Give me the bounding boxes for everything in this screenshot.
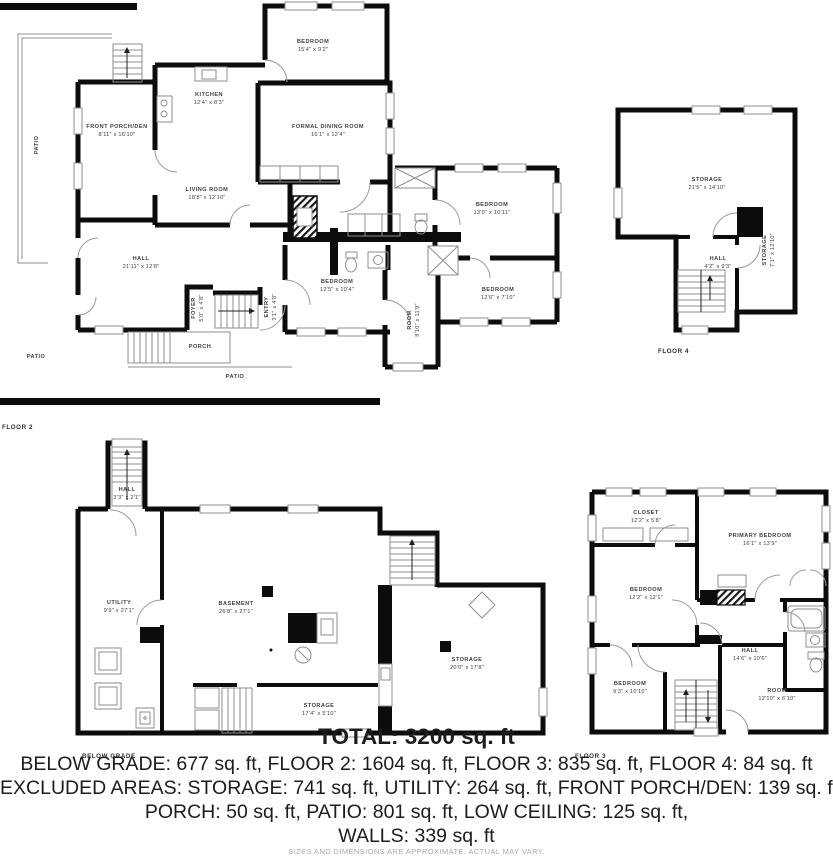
room-label-patio-left: PATIO — [33, 136, 41, 155]
room-label-porch-den: FRONT PORCH/DEN8'11" x 16'10" — [86, 123, 147, 139]
room-label-bedroom-ne: BEDROOM13'9" x 10'11" — [474, 201, 511, 217]
stairs — [675, 680, 717, 730]
room-label-storage-big: STORAGE20'0" x 17'8" — [450, 656, 484, 672]
room-label-storage-strip: STORAGE17'4" x 5'10" — [302, 702, 336, 718]
room-label-bedroom-w: BEDROOM12'2" x 12'1" — [629, 586, 663, 602]
room-label-room-se: ROOM12'10" x 6'10" — [758, 687, 795, 703]
room-label-kitchen: KITCHEN12'4" x 8'3" — [194, 91, 225, 107]
stairs — [678, 270, 725, 312]
door-arcs — [78, 60, 490, 330]
room-label-patio-bottom2: PATIO — [226, 373, 245, 381]
floor4-plan — [614, 106, 795, 334]
room-label-patio-bottom1: PATIO — [27, 353, 46, 361]
room-label-entry: ENTRY3'1" x 4'8" — [263, 293, 279, 320]
fence-wall — [0, 3, 137, 10]
furnace — [262, 586, 337, 663]
room-label-bedroom-top: BEDROOM15'4" x 9'2" — [297, 38, 329, 54]
room-label-dining: FORMAL DINING ROOM16'1" x 12'4" — [292, 123, 364, 139]
summary-line-excluded: EXCLUDED AREAS: STORAGE: 741 sq. ft, UTI… — [0, 777, 833, 799]
bathroom-fixtures — [788, 606, 825, 672]
summary-total: TOTAL: 3200 sq. ft — [0, 726, 833, 748]
stairs — [390, 536, 435, 585]
summary-line-floors: BELOW GRADE: 677 sq. ft, FLOOR 2: 1604 s… — [0, 753, 833, 775]
caption-floor4: FLOOR 4 — [658, 348, 689, 355]
chimney-hatch — [717, 590, 745, 605]
room-label-hall-f4: HALL4'2" x 9'3" — [704, 255, 731, 271]
floor2-plan — [0, 2, 561, 371]
windows — [74, 2, 561, 371]
room-label-storage-side-f4: STORAGE7'1" x 12'10" — [761, 233, 777, 267]
closet-shelves — [603, 528, 746, 587]
section-divider — [0, 398, 380, 405]
room-label-hall-f3: HALL14'6" x 10'6" — [733, 647, 767, 663]
room-label-bedroom-se: BEDROOM12'6" x 7'10" — [481, 286, 515, 302]
stairs — [113, 44, 142, 82]
room-label-closet: CLOSET12'2" x 5'8" — [631, 509, 662, 525]
room-label-utility: UTILITY9'9" x 27'1" — [104, 599, 135, 615]
room-label-foyer: FOYER5'0" x 4'8" — [190, 294, 206, 321]
kitchen-sink — [195, 67, 227, 81]
washer-dryer — [95, 648, 154, 728]
caption-floor2: FLOOR 2 — [2, 424, 33, 431]
below-grade-plan — [78, 439, 547, 737]
floor-plan-page: BEDROOM15'4" x 9'2" KITCHEN12'4" x 8'3" … — [0, 0, 833, 856]
stove — [157, 96, 172, 122]
room-label-bedroom-sw: BEDROOM9'3" x 10'10" — [613, 680, 647, 696]
room-label-hall-bg: HALL3'3" x 2'1" — [113, 486, 140, 502]
summary-line-porch-patio: PORCH: 50 sq. ft, PATIO: 801 sq. ft, LOW… — [0, 801, 833, 823]
room-label-hall-f2: HALL21'11" x 12'8" — [123, 255, 160, 271]
summary-disclaimer: SIZES AND DIMENSIONS ARE APPROXIMATE. AC… — [0, 847, 833, 856]
room-label-bedroom-center: BEDROOM12'5" x 10'4" — [320, 278, 354, 294]
diamond-post — [469, 592, 495, 618]
room-label-primary-bedroom: PRIMARY BEDROOM16'1" x 13'9" — [728, 532, 791, 548]
summary-line-walls: WALLS: 339 sq. ft — [0, 825, 833, 847]
room-label-storage-f4: STORAGE21'5" x 14'10" — [688, 176, 725, 192]
floor2-walls — [78, 6, 557, 367]
room-label-basement: BASEMENT26'8" x 27'1" — [219, 600, 254, 616]
windows — [112, 439, 547, 737]
stairs — [215, 295, 258, 328]
room-label-living: LIVING ROOM18'8" x 12'10" — [186, 186, 229, 202]
room-label-room-s: ROOM8'10" x 11'9" — [406, 303, 422, 337]
room-label-porch: PORCH — [189, 343, 211, 351]
